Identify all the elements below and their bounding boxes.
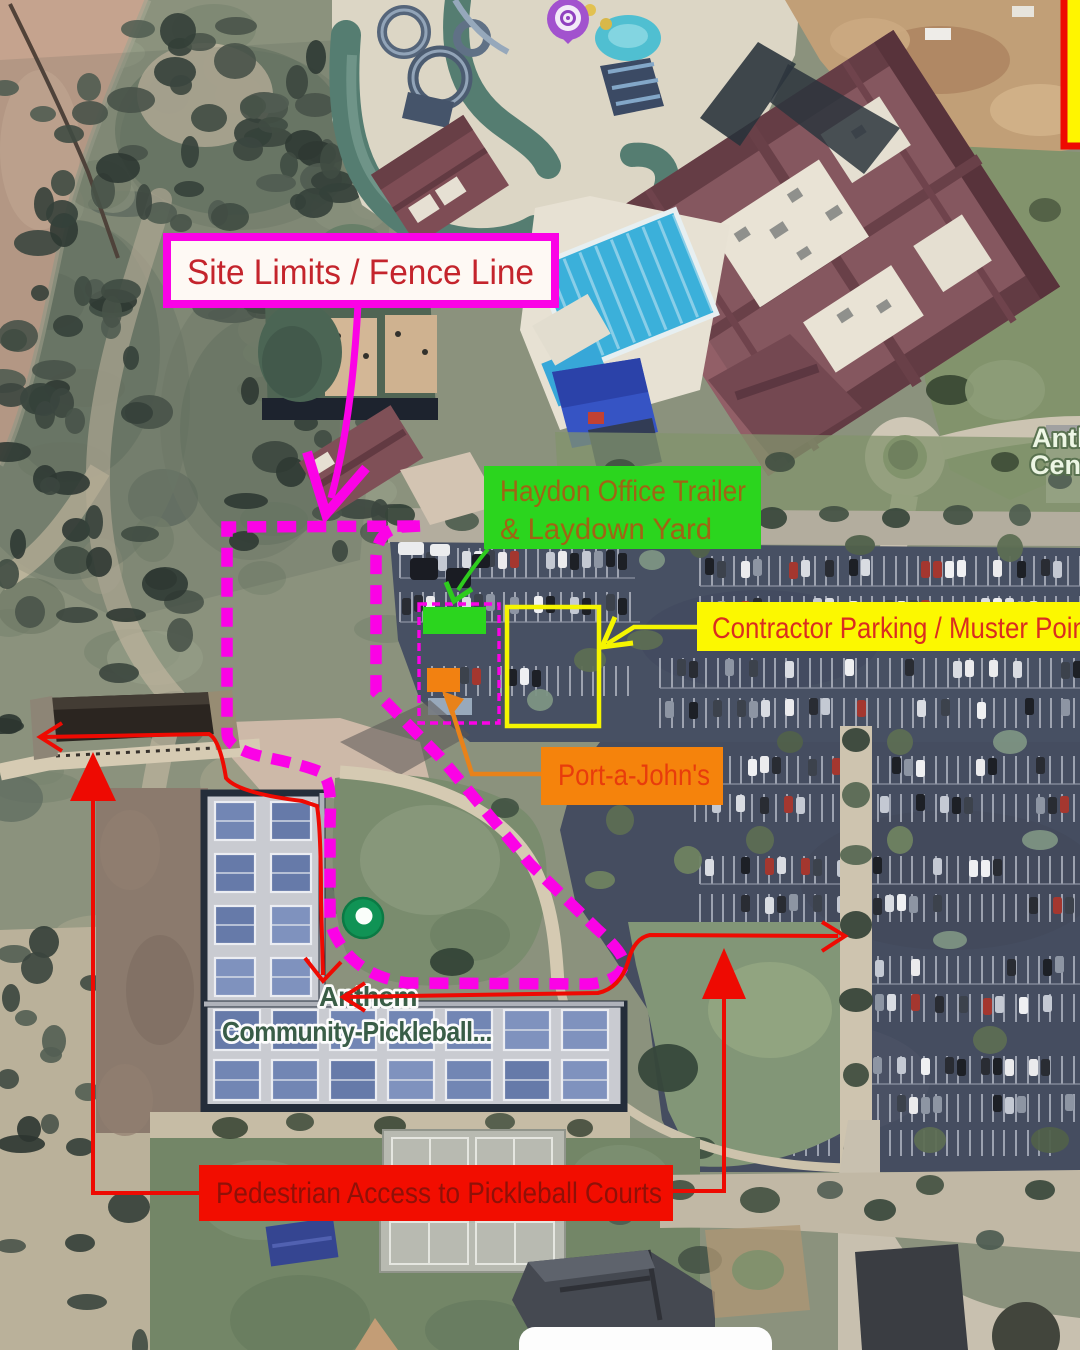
svg-text:& Laydown Yard: & Laydown Yard: [500, 513, 712, 546]
svg-text:Site Limits / Fence Line: Site Limits / Fence Line: [187, 253, 534, 292]
svg-text:Anthem: Anthem: [1032, 423, 1080, 453]
svg-text:Haydon Office Trailer: Haydon Office Trailer: [500, 475, 746, 508]
svg-text:Center: Center: [1030, 450, 1080, 480]
svg-text:Community-Pickleball...: Community-Pickleball...: [222, 1016, 492, 1047]
svg-text:Contractor Parking / Muster Po: Contractor Parking / Muster Point: [712, 612, 1080, 645]
svg-text:Pedestrian Access to Picklebal: Pedestrian Access to Pickleball Courts: [216, 1177, 662, 1210]
svg-text:Port-a-John's: Port-a-John's: [558, 759, 710, 792]
